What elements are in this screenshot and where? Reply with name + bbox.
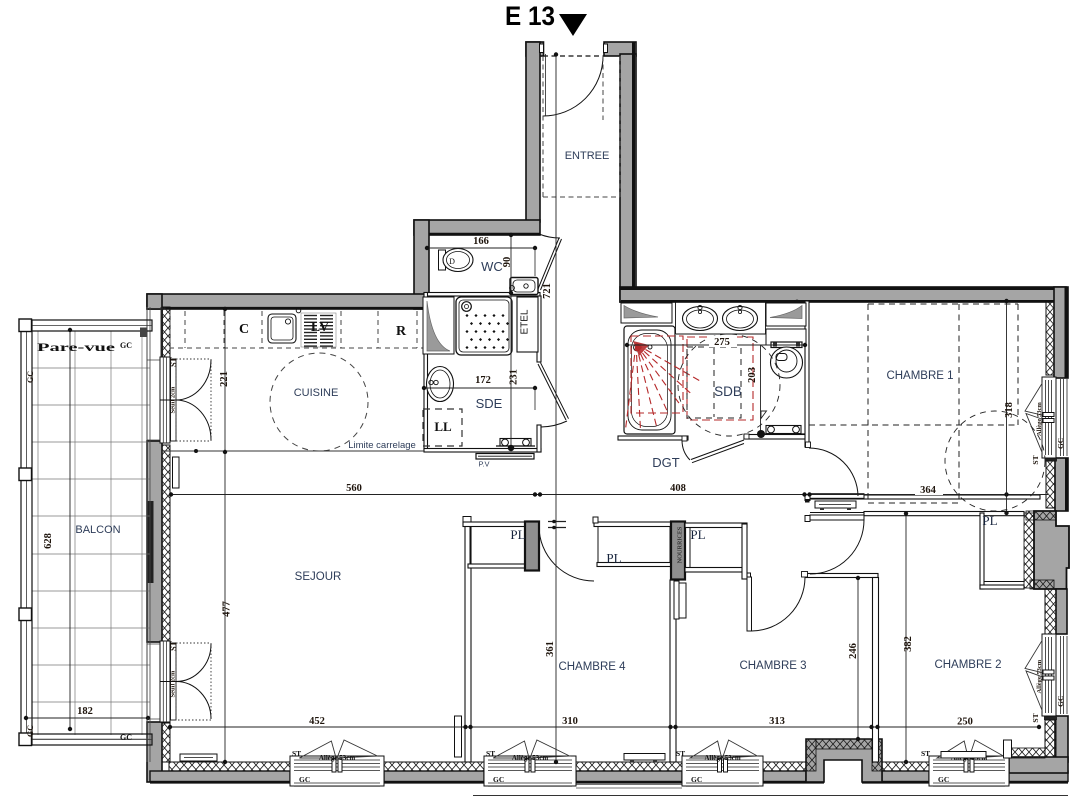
svg-text:172: 172 (475, 375, 491, 386)
svg-text:ST: ST (169, 356, 178, 366)
svg-text:C: C (239, 322, 249, 337)
svg-text:310: 310 (562, 716, 578, 727)
svg-text:452: 452 (309, 716, 325, 727)
svg-text:GC: GC (26, 725, 35, 737)
svg-text:CHAMBRE 1: CHAMBRE 1 (886, 370, 953, 382)
svg-text:628: 628 (43, 533, 54, 549)
svg-text:WC: WC (481, 259, 503, 274)
svg-text:182: 182 (77, 706, 93, 717)
svg-text:Allège 53cm: Allège 53cm (704, 754, 741, 762)
svg-text:ST: ST (676, 749, 685, 758)
svg-text:D: D (449, 257, 455, 266)
svg-text:Pare-vue: Pare-vue (37, 340, 116, 354)
svg-text:361: 361 (545, 641, 556, 657)
svg-text:GC: GC (691, 775, 702, 784)
svg-text:BALCON: BALCON (75, 524, 120, 536)
svg-text:PL: PL (510, 527, 525, 542)
svg-text:Seuil 2cm: Seuil 2cm (170, 670, 177, 697)
svg-text:GC: GC (120, 341, 132, 350)
svg-text:ETEL: ETEL (520, 309, 531, 334)
svg-text:NOURRICES: NOURRICES (677, 526, 684, 563)
svg-text:275: 275 (714, 337, 730, 348)
svg-text:R: R (396, 324, 407, 339)
svg-text:203: 203 (747, 367, 758, 383)
svg-text:CUISINE: CUISINE (294, 387, 339, 399)
svg-text:DGT: DGT (652, 455, 680, 470)
svg-text:ST: ST (1031, 455, 1040, 464)
svg-text:Allège 53cm: Allège 53cm (1036, 659, 1043, 693)
svg-text:LL: LL (434, 419, 452, 434)
svg-text:382: 382 (903, 636, 914, 652)
svg-text:Seuil 2cm: Seuil 2cm (170, 386, 177, 413)
svg-text:GC: GC (299, 775, 310, 784)
svg-text:P.V: P.V (478, 460, 489, 469)
svg-text:ST: ST (292, 749, 301, 758)
svg-text:Allège 53cm: Allège 53cm (1036, 402, 1043, 436)
svg-text:SDB: SDB (714, 384, 742, 399)
svg-text:90: 90 (502, 257, 513, 268)
svg-text:GC: GC (1056, 696, 1065, 707)
svg-text:ST: ST (486, 749, 495, 758)
svg-text:Allège 53cm: Allège 53cm (319, 754, 356, 762)
svg-text:ST: ST (1031, 713, 1040, 722)
svg-text:GC: GC (26, 371, 35, 383)
svg-text:408: 408 (670, 483, 686, 494)
svg-text:GC: GC (1056, 438, 1065, 449)
svg-text:313: 313 (769, 716, 785, 727)
svg-text:CHAMBRE 3: CHAMBRE 3 (739, 660, 806, 672)
svg-text:166: 166 (473, 236, 489, 247)
svg-text:560: 560 (346, 483, 362, 494)
svg-text:477: 477 (222, 601, 233, 617)
svg-text:318: 318 (1004, 402, 1015, 418)
svg-text:PL: PL (690, 527, 705, 542)
svg-text:246: 246 (848, 643, 859, 659)
svg-text:GC: GC (938, 775, 949, 784)
svg-text:ENTREE: ENTREE (565, 150, 610, 162)
svg-text:CHAMBRE 2: CHAMBRE 2 (934, 659, 1001, 671)
svg-text:GC: GC (120, 733, 132, 742)
svg-text:Allège 53cm: Allège 53cm (512, 754, 549, 762)
svg-text:GC: GC (493, 775, 504, 784)
svg-text:SEJOUR: SEJOUR (295, 571, 342, 583)
svg-text:PL: PL (606, 551, 621, 566)
svg-text:SDE: SDE (476, 396, 503, 411)
svg-text:E 13: E 13 (505, 1, 555, 31)
svg-text:721: 721 (542, 283, 553, 299)
svg-text:ST: ST (169, 640, 178, 650)
svg-text:250: 250 (957, 717, 973, 728)
svg-text:221: 221 (219, 371, 230, 387)
svg-text:PL: PL (982, 513, 997, 528)
svg-text:LV: LV (311, 320, 329, 335)
svg-text:364: 364 (920, 485, 937, 496)
svg-text:Limite carrelage: Limite carrelage (348, 440, 416, 451)
svg-text:ST: ST (921, 749, 930, 758)
svg-text:231: 231 (509, 369, 520, 385)
svg-text:CHAMBRE 4: CHAMBRE 4 (558, 661, 626, 673)
